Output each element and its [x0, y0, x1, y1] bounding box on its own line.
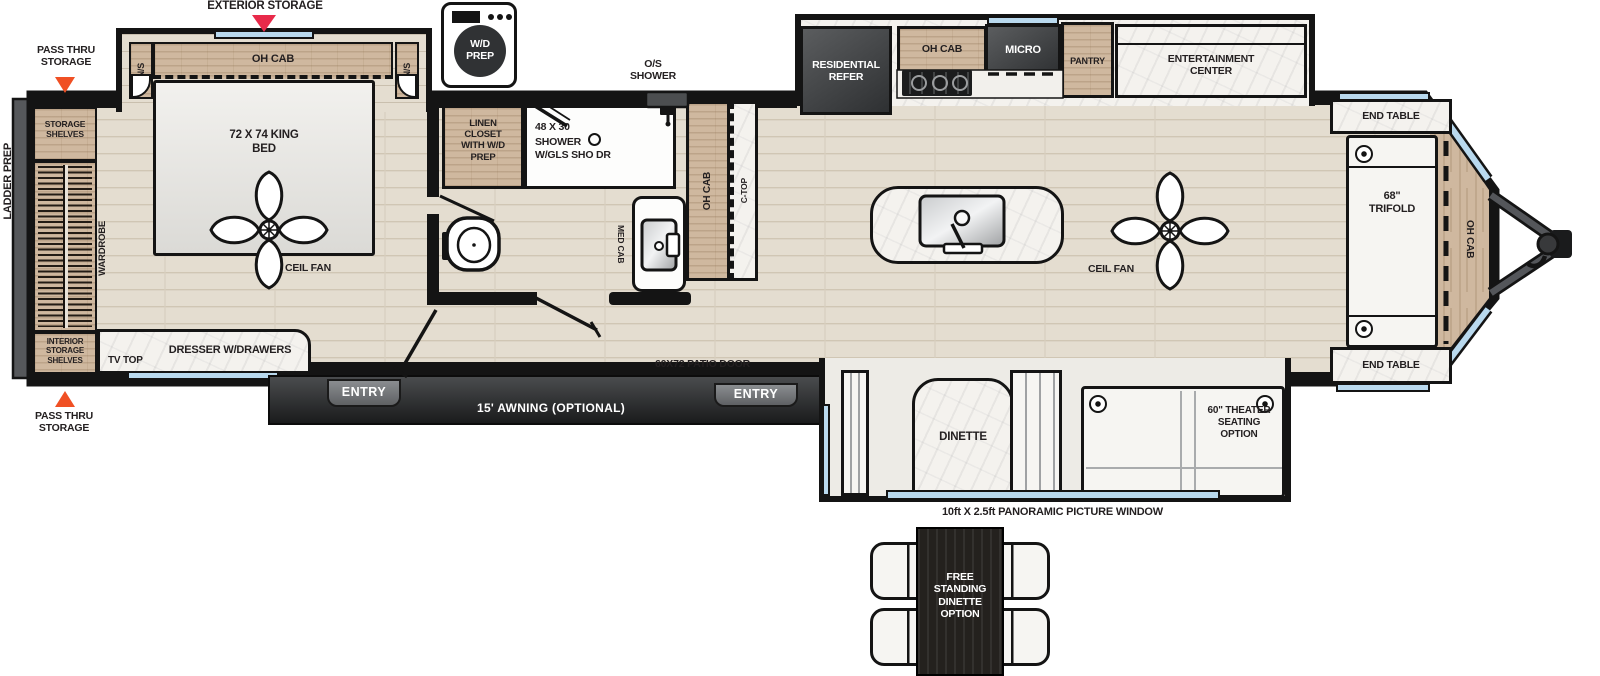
dinette-bench-left: [841, 370, 869, 496]
linen-closet: LINEN CLOSET WITH W/D PREP: [442, 105, 524, 189]
pass-thru-top-label: PASS THRU STORAGE: [24, 44, 108, 69]
microwave: MICRO: [985, 24, 1061, 78]
wardrobe-label: WARDROBE: [97, 221, 108, 276]
front-bottom-window: [1336, 383, 1430, 392]
shower-label: SHOWER: [535, 136, 581, 148]
pantry: PANTRY: [1061, 22, 1114, 98]
bath-door-icon: [536, 298, 600, 337]
vanity-wall: [609, 292, 691, 305]
sofa-cupholder-top: [1355, 145, 1373, 163]
interior-storage-shelves: INTERIOR STORAGE SHELVES: [33, 332, 97, 374]
shower: 48 X 30 SHOWER W/GLS SHO DR: [524, 105, 676, 189]
free-standing-dinette-table: FREE STANDING DINETTE OPTION: [916, 527, 1004, 676]
countertop-label: C-TOP: [739, 178, 749, 203]
exterior-storage-arrow-icon: [252, 15, 276, 32]
entertainment-shelf-line: [1118, 27, 1304, 45]
bedroom-ceiling-fan-label: CEIL FAN: [285, 262, 349, 274]
bedroom-overhead-cabinet-label: OH CAB: [155, 44, 391, 74]
tv-top-label: TV TOP: [108, 355, 158, 367]
end-table-bottom: END TABLE: [1330, 347, 1452, 384]
pass-thru-top-arrow-icon: [55, 77, 75, 93]
end-table-top-label: END TABLE: [1333, 102, 1449, 122]
floorplan-canvas: N/S OH CAB N/S 72 X 74 KING BED STORAGE …: [0, 0, 1600, 676]
entry-door-front: ENTRY: [714, 383, 798, 407]
ladder-prep-label-wrap: LADDER PREP: [0, 106, 17, 256]
dinette-chair-4: [998, 608, 1050, 666]
toilet-room-door-icon: [440, 196, 494, 221]
end-table-top: END TABLE: [1330, 99, 1452, 134]
sofa-cupholder-bottom: [1355, 320, 1373, 338]
med-cab-label: MED CAB: [616, 225, 626, 263]
hitch-tongue: [1491, 195, 1572, 293]
refrigerator-label: RESIDENTIAL REFER: [803, 29, 889, 84]
trifold-sofa-label: 68" TRIFOLD: [1362, 190, 1422, 216]
wardrobe-rod: [63, 165, 68, 328]
pass-thru-bottom-label: PASS THRU STORAGE: [22, 410, 106, 435]
wd-prep-label: W/D PREP: [463, 38, 497, 63]
toilet-room-wall: [427, 292, 537, 305]
theater-cupholder-left: [1089, 395, 1107, 413]
dresser: DRESSER W/DRAWERS TV TOP: [97, 329, 311, 374]
shower-label-block: 48 X 30 SHOWER W/GLS SHO DR: [535, 121, 665, 161]
entry-rear-label: ENTRY: [329, 381, 399, 400]
washer-knobs: [488, 14, 514, 21]
dinette-chair-1: [870, 542, 922, 600]
dresser-label: DRESSER W/DRAWERS: [155, 344, 305, 357]
entertainment-center: ENTERTAINMENT CENTER: [1115, 24, 1307, 98]
wardrobe: [33, 161, 97, 332]
pantry-label: PANTRY: [1064, 25, 1111, 67]
bath-wall-upper: [427, 101, 439, 197]
panoramic-window-label: 10ft X 2.5ft PANORAMIC PICTURE WINDOW: [900, 506, 1205, 519]
shower-drain-icon: [588, 133, 601, 146]
toilet-icon: [442, 218, 499, 270]
kitchen-overhead-cabinet: OH CAB: [897, 26, 987, 74]
panoramic-window: [886, 490, 1220, 500]
shower-door-label: W/GLS SHO DR: [535, 149, 665, 161]
bath-vanity: [632, 196, 686, 292]
theater-console: [1180, 391, 1196, 493]
bath-overhead-cabinet-label: OH CAB: [702, 172, 714, 210]
ladder-prep-label: LADDER PREP: [2, 143, 15, 220]
sofa-armrest-line-bottom: [1349, 315, 1435, 317]
washer-panel: [452, 11, 480, 23]
washer-dryer-icon: W/D PREP: [441, 2, 517, 88]
bath-overhead-cabinet: OH CAB: [686, 101, 730, 281]
dinette-bench-right: [1010, 370, 1062, 496]
kitchen-window: [987, 16, 1059, 25]
entry-front-label: ENTRY: [716, 385, 796, 402]
bath-wall-lower: [427, 214, 439, 304]
living-ceiling-fan-label: CEIL FAN: [1088, 263, 1150, 275]
theater-seating: 60" THEATER SEATING OPTION: [1081, 386, 1285, 498]
theater-front-line: [1086, 467, 1282, 469]
king-bed-label: 72 X 74 KING BED: [229, 129, 299, 156]
dinette-table: DINETTE: [912, 378, 1014, 500]
theater-seating-label: 60" THEATER SEATING OPTION: [1198, 405, 1280, 440]
refrigerator: RESIDENTIAL REFER: [800, 26, 892, 115]
entertainment-center-label: ENTERTAINMENT CENTER: [1146, 53, 1276, 78]
pass-thru-bottom-arrow-icon: [55, 391, 75, 407]
med-cab-label-wrap: MED CAB: [612, 212, 630, 276]
kitchen-overhead-cabinet-label: OH CAB: [900, 29, 984, 55]
king-bed: 72 X 74 KING BED: [153, 80, 375, 256]
kitchen-island: [870, 186, 1064, 264]
patio-door-label: 60X72 PATIO DOOR: [625, 358, 780, 370]
free-standing-dinette-label: FREE STANDING DINETTE OPTION: [930, 571, 990, 621]
dinette-chair-2: [870, 608, 922, 666]
outside-shower-label: O/S SHOWER: [628, 58, 678, 83]
end-table-bottom-label: END TABLE: [1333, 350, 1449, 371]
front-overhead-cabinet-label-wrap: OH CAB: [1458, 206, 1480, 272]
entry-door-rear: ENTRY: [327, 379, 401, 407]
shower-size-label: 48 X 30: [535, 121, 665, 133]
dinette-label: DINETTE: [915, 381, 1011, 445]
countertop-strip: C-TOP: [730, 101, 758, 281]
slide-side-window: [822, 404, 830, 496]
dinette-chair-3: [998, 542, 1050, 600]
trifold-sofa: 68" TRIFOLD: [1346, 135, 1438, 348]
bedroom-lower-window: [127, 371, 279, 380]
storage-shelves: STORAGE SHELVES: [33, 107, 97, 161]
microwave-label: MICRO: [988, 27, 1058, 57]
storage-shelves-label: STORAGE SHELVES: [35, 109, 95, 139]
front-overhead-cabinet-label: OH CAB: [1463, 220, 1475, 258]
wardrobe-label-wrap: WARDROBE: [92, 192, 114, 304]
exterior-storage-label: EXTERIOR STORAGE: [160, 0, 370, 14]
interior-storage-shelves-label: INTERIOR STORAGE SHELVES: [35, 334, 95, 365]
linen-closet-label: LINEN CLOSET WITH W/D PREP: [458, 118, 508, 163]
bedroom-overhead-cabinet: OH CAB: [153, 42, 393, 79]
sofa-armrest-line-top: [1349, 166, 1435, 168]
washer-drum: W/D PREP: [454, 25, 506, 77]
bedroom-door-icon: [394, 310, 436, 377]
